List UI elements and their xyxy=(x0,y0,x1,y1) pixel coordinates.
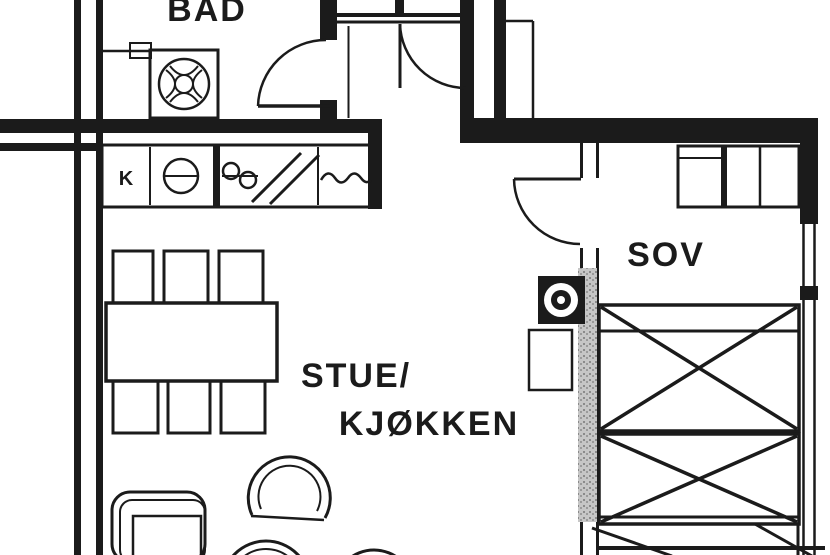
wall-band-lower xyxy=(0,143,102,151)
wall-right-upper xyxy=(800,118,818,224)
room-label-bedroom: SOV xyxy=(627,236,705,274)
wall-sov-top xyxy=(460,118,818,143)
room-label-living-line2: KJØKKEN xyxy=(339,405,519,443)
counter-divider xyxy=(213,145,220,207)
floor-plan-svg: BAD SOV STUE/ KJØKKEN K xyxy=(0,0,830,555)
wall-left-outer xyxy=(74,0,81,555)
wall-bad-right-top xyxy=(320,0,337,40)
room-label-bathroom: BAD xyxy=(167,0,247,29)
room-label-living-line1: STUE/ xyxy=(301,357,411,395)
wall-stub-counter-end xyxy=(368,119,382,209)
wall-hall-right-a xyxy=(460,0,474,122)
wall-left-inner xyxy=(96,0,103,555)
wall-front-door-stub xyxy=(395,0,404,14)
wall-hall-right-b xyxy=(494,0,506,122)
wall-right-pillar xyxy=(800,286,818,300)
floor-plan-scan: BAD SOV STUE/ KJØKKEN K xyxy=(0,0,830,555)
paper-background xyxy=(0,0,830,555)
fridge-label: K xyxy=(119,168,134,190)
wood-stove-icon xyxy=(557,296,565,304)
